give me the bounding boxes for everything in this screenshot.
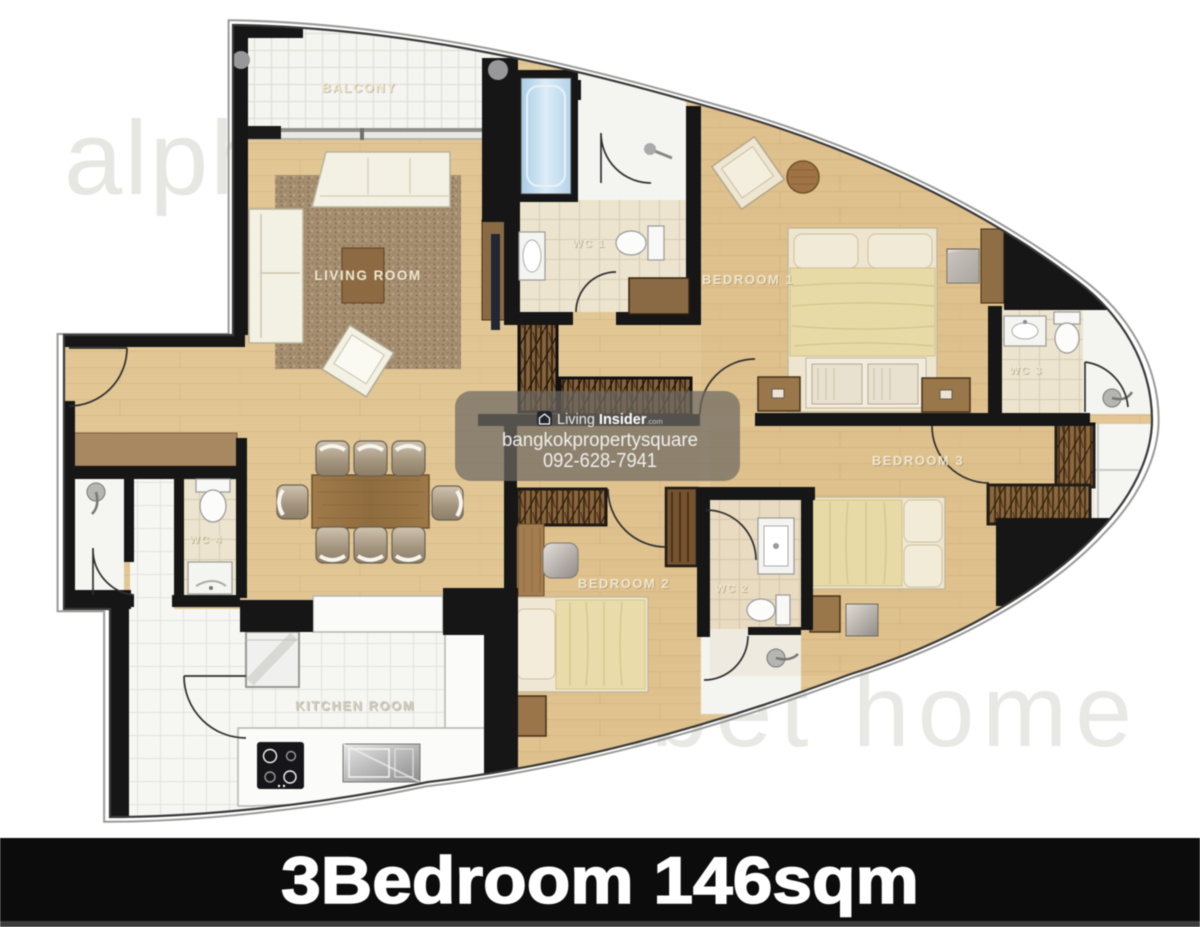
- svg-text:LIVING ROOM: LIVING ROOM: [314, 268, 421, 283]
- svg-text:BEDROOM 1: BEDROOM 1: [702, 272, 794, 287]
- svg-text:WC 3: WC 3: [1009, 365, 1043, 377]
- svg-text:KITCHEN ROOM: KITCHEN ROOM: [295, 698, 415, 713]
- svg-text:BALCONY: BALCONY: [322, 80, 397, 95]
- svg-text:3Bedroom 146sqm: 3Bedroom 146sqm: [281, 843, 919, 917]
- svg-text:092-628-7941: 092-628-7941: [543, 450, 657, 472]
- svg-text:WC 1: WC 1: [572, 238, 606, 250]
- svg-text:WC 4: WC 4: [189, 534, 223, 546]
- svg-text:WC 2: WC 2: [715, 583, 749, 595]
- svg-text:bangkokpropertysquare: bangkokpropertysquare: [502, 430, 698, 451]
- svg-text:BEDROOM 2: BEDROOM 2: [578, 576, 670, 591]
- svg-text:BEDROOM 3: BEDROOM 3: [872, 453, 964, 468]
